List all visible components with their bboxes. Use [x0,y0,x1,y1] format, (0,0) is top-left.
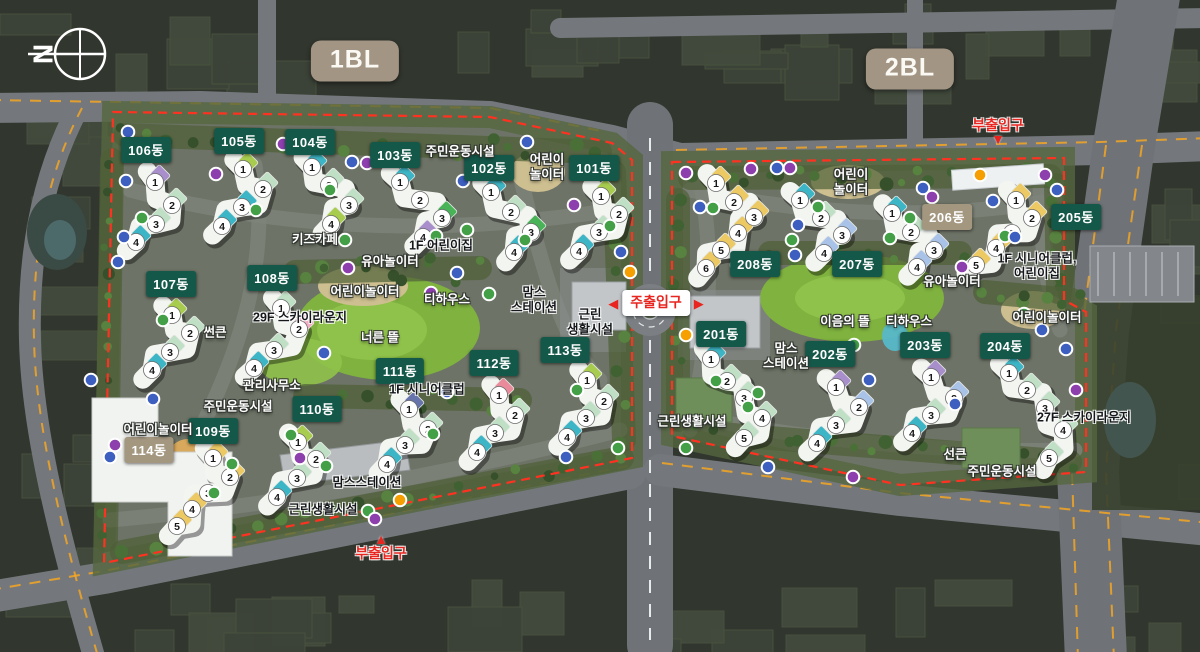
facility-label: 맘스스테이션 [511,285,557,315]
building-label-101동: 101동 [569,155,619,181]
main-entrance-text: 주출입구 [622,290,690,316]
facility-label: 관리사무소 [243,379,301,394]
facility-label: 맘스스테이션 [332,476,401,491]
facility-label: 어린이놀이터 [834,167,869,197]
sub-entrance-label-1: 부출입구▼ [972,118,1024,146]
building-label-111동: 111동 [376,358,424,384]
building-label-109동: 109동 [188,418,238,444]
compass-icon: N [22,20,118,92]
compass-north-letter: N [28,44,59,64]
facility-label: 주민운동시설 [203,400,272,415]
main-entrance-arrow-left: ◀ [608,297,618,310]
building-label-203동: 203동 [900,332,950,358]
building-label-112동: 112동 [470,350,519,376]
building-label-110동: 110동 [293,396,342,422]
facility-label: 근린생활시설 [567,307,613,337]
facility-label: 키즈카페 [292,233,338,248]
building-label-202동: 202동 [805,341,855,367]
facility-label: 이음의 뜰 [820,315,869,330]
building-label-205동: 205동 [1051,204,1101,230]
building-label-108동: 108동 [247,265,297,291]
facility-label: 주민운동시설 [425,145,494,160]
building-label-114동: 114동 [125,437,174,463]
facility-label: 주민운동시설 [967,465,1036,480]
main-entrance-arrow-right: ▶ [694,297,704,310]
sub-entrance-text: 부출입구 [355,546,407,560]
facility-label: 어린이놀이터 [530,152,565,182]
sub-entrance-text: 부출입구 [972,118,1024,132]
building-label-103동: 103동 [370,142,420,168]
building-label-206동: 206동 [922,204,972,230]
label-overlay: 1BL2BL106동105동104동103동102동101동107동108동10… [0,0,1200,652]
building-label-104동: 104동 [285,129,335,155]
building-label-107동: 107동 [146,271,196,297]
sub-entrance-triangle-icon: ▲ [374,532,388,546]
facility-label: 27F 스카이라운지 [1037,411,1131,426]
building-label-204동: 204동 [980,333,1030,359]
facility-label: 유아놀이터 [361,255,419,270]
facility-label: 1F 시니어클럽 [389,383,465,398]
facility-label: 티하우스 [424,293,470,308]
building-label-201동: 201동 [696,321,746,347]
facility-label: 유아놀이터 [923,275,981,290]
facility-label: 선큰 [943,448,966,463]
facility-label: 너른 뜰 [361,331,399,346]
building-label-208동: 208동 [730,251,780,277]
site-plan: 1234123412341234123412341234123412345123… [0,0,1200,652]
building-label-207동: 207동 [832,251,882,277]
sub-entrance-label-2: ▲부출입구 [355,532,407,560]
facility-label: 29F 스카이라운지 [253,311,347,326]
building-label-105동: 105동 [214,128,264,154]
sub-entrance-triangle-icon: ▼ [991,132,1005,146]
facility-label: 어린이놀이터 [330,285,399,300]
block-badge-2bl: 2BL [866,49,954,90]
building-label-106동: 106동 [121,137,171,163]
facility-label: 근린생활시설 [288,503,357,518]
facility-label: 맘스스테이션 [763,341,809,371]
facility-label: 썬큰 [203,326,226,341]
building-label-113동: 113동 [541,337,590,363]
main-entrance-label: ◀주출입구▶ [608,290,704,316]
facility-label: 근린생활시설 [657,415,726,430]
block-badge-1bl: 1BL [311,41,399,82]
facility-label: 어린이놀이터 [123,423,192,438]
facility-label: 1F 어린이집 [409,239,473,254]
facility-label: 티하우스 [886,315,932,330]
facility-label: 어린이놀이터 [1012,311,1081,326]
facility-label: 1F 시니어클럽,어린이집 [997,251,1076,281]
